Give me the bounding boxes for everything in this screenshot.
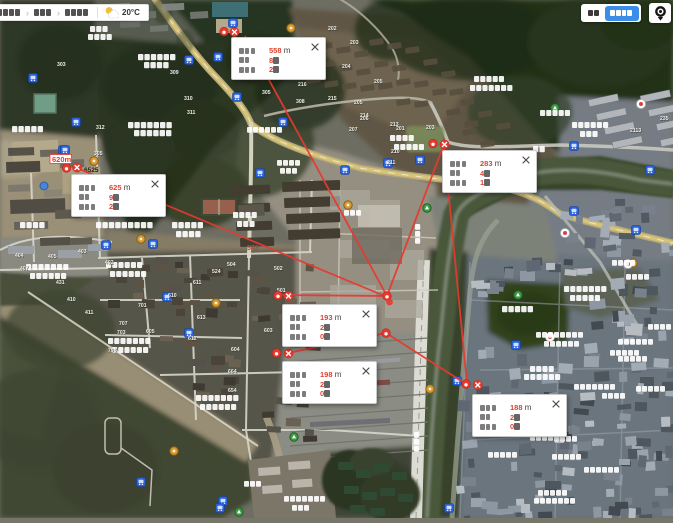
svg-text:504: 504 <box>227 262 236 268</box>
svg-text:308: 308 <box>296 99 305 105</box>
svg-text:6525: 6525 <box>84 167 99 174</box>
svg-text:235: 235 <box>660 116 669 122</box>
svg-text:204: 204 <box>342 64 351 70</box>
svg-text:311: 311 <box>187 110 195 116</box>
svg-text:303: 303 <box>57 62 66 68</box>
svg-text:611: 611 <box>193 280 201 286</box>
svg-text:701: 701 <box>138 303 147 309</box>
svg-text:403: 403 <box>78 249 87 255</box>
svg-text:603: 603 <box>264 328 273 334</box>
svg-text:407: 407 <box>20 266 29 272</box>
svg-text:402: 402 <box>105 260 114 266</box>
svg-text:207: 207 <box>349 127 358 133</box>
svg-text:502: 502 <box>274 266 283 272</box>
svg-text:211: 211 <box>387 160 395 166</box>
svg-text:612: 612 <box>188 336 197 342</box>
svg-text:2113: 2113 <box>630 128 641 134</box>
svg-text:524: 524 <box>212 269 221 275</box>
svg-text:503: 503 <box>247 245 259 252</box>
svg-text:664: 664 <box>228 369 237 375</box>
svg-text:215: 215 <box>328 96 337 102</box>
svg-text:605: 605 <box>146 329 155 335</box>
svg-text:312: 312 <box>96 125 105 131</box>
svg-text:310: 310 <box>184 96 193 102</box>
svg-text:431: 431 <box>56 280 65 286</box>
svg-text:405: 405 <box>48 254 57 260</box>
svg-text:404: 404 <box>15 253 24 259</box>
svg-text:201: 201 <box>396 126 405 132</box>
svg-text:205: 205 <box>354 100 363 106</box>
svg-text:707: 707 <box>119 321 128 327</box>
svg-text:708: 708 <box>108 348 117 354</box>
svg-text:654: 654 <box>228 388 237 394</box>
svg-text:202: 202 <box>328 26 337 32</box>
svg-text:216: 216 <box>298 82 307 88</box>
svg-text:309: 309 <box>170 70 179 76</box>
svg-text:613: 613 <box>197 315 206 321</box>
svg-text:610: 610 <box>168 293 177 299</box>
svg-text:703: 703 <box>117 330 126 336</box>
svg-text:206: 206 <box>360 116 369 122</box>
svg-text:305: 305 <box>94 151 103 157</box>
svg-text:205: 205 <box>374 79 383 85</box>
svg-text:203: 203 <box>426 125 435 131</box>
svg-text:210: 210 <box>391 149 400 155</box>
svg-text:411: 411 <box>85 310 93 316</box>
svg-text:305: 305 <box>262 90 271 96</box>
svg-text:620m: 620m <box>52 155 72 164</box>
svg-text:410: 410 <box>67 297 76 303</box>
svg-text:203: 203 <box>350 40 359 46</box>
svg-text:604: 604 <box>231 347 240 353</box>
